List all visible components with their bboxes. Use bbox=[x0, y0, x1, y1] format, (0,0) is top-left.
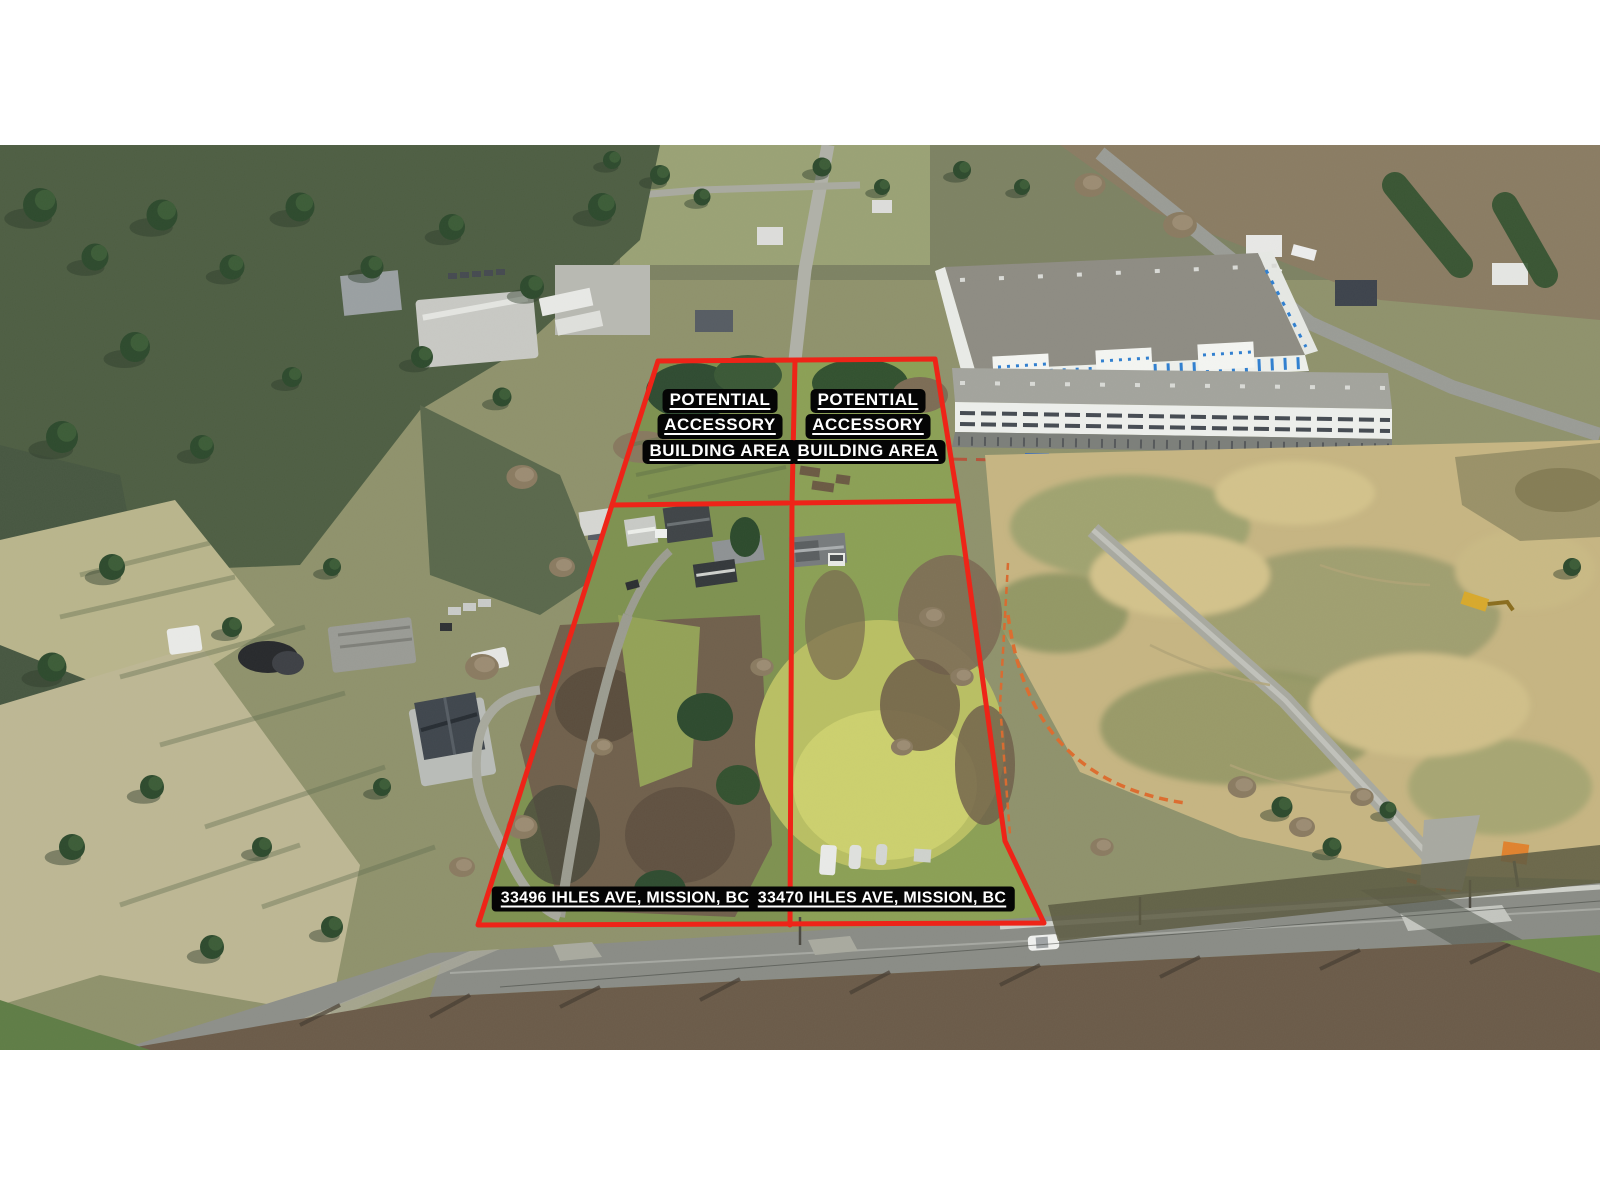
aerial-photo-scene bbox=[0, 145, 1600, 1050]
grain-overlay bbox=[0, 145, 1600, 1050]
label-line: BUILDING AREA bbox=[791, 440, 946, 464]
address-label-33470: 33470 IHLES AVE, MISSION, BC bbox=[749, 887, 1015, 912]
label-line: ACCESSORY bbox=[805, 414, 931, 438]
label-line: POTENTIAL bbox=[663, 389, 778, 413]
annotated-aerial-listing-image: POTENTIAL ACCESSORY BUILDING AREA POTENT… bbox=[0, 0, 1600, 1200]
label-line: BUILDING AREA bbox=[643, 440, 798, 464]
label-line: POTENTIAL bbox=[811, 389, 926, 413]
address-label-33496: 33496 IHLES AVE, MISSION, BC bbox=[492, 887, 758, 912]
label-line: ACCESSORY bbox=[657, 414, 783, 438]
accessory-building-area-label-right: POTENTIAL ACCESSORY BUILDING AREA bbox=[791, 389, 946, 464]
accessory-building-area-label-left: POTENTIAL ACCESSORY BUILDING AREA bbox=[643, 389, 798, 464]
aerial-photo bbox=[0, 145, 1600, 1050]
